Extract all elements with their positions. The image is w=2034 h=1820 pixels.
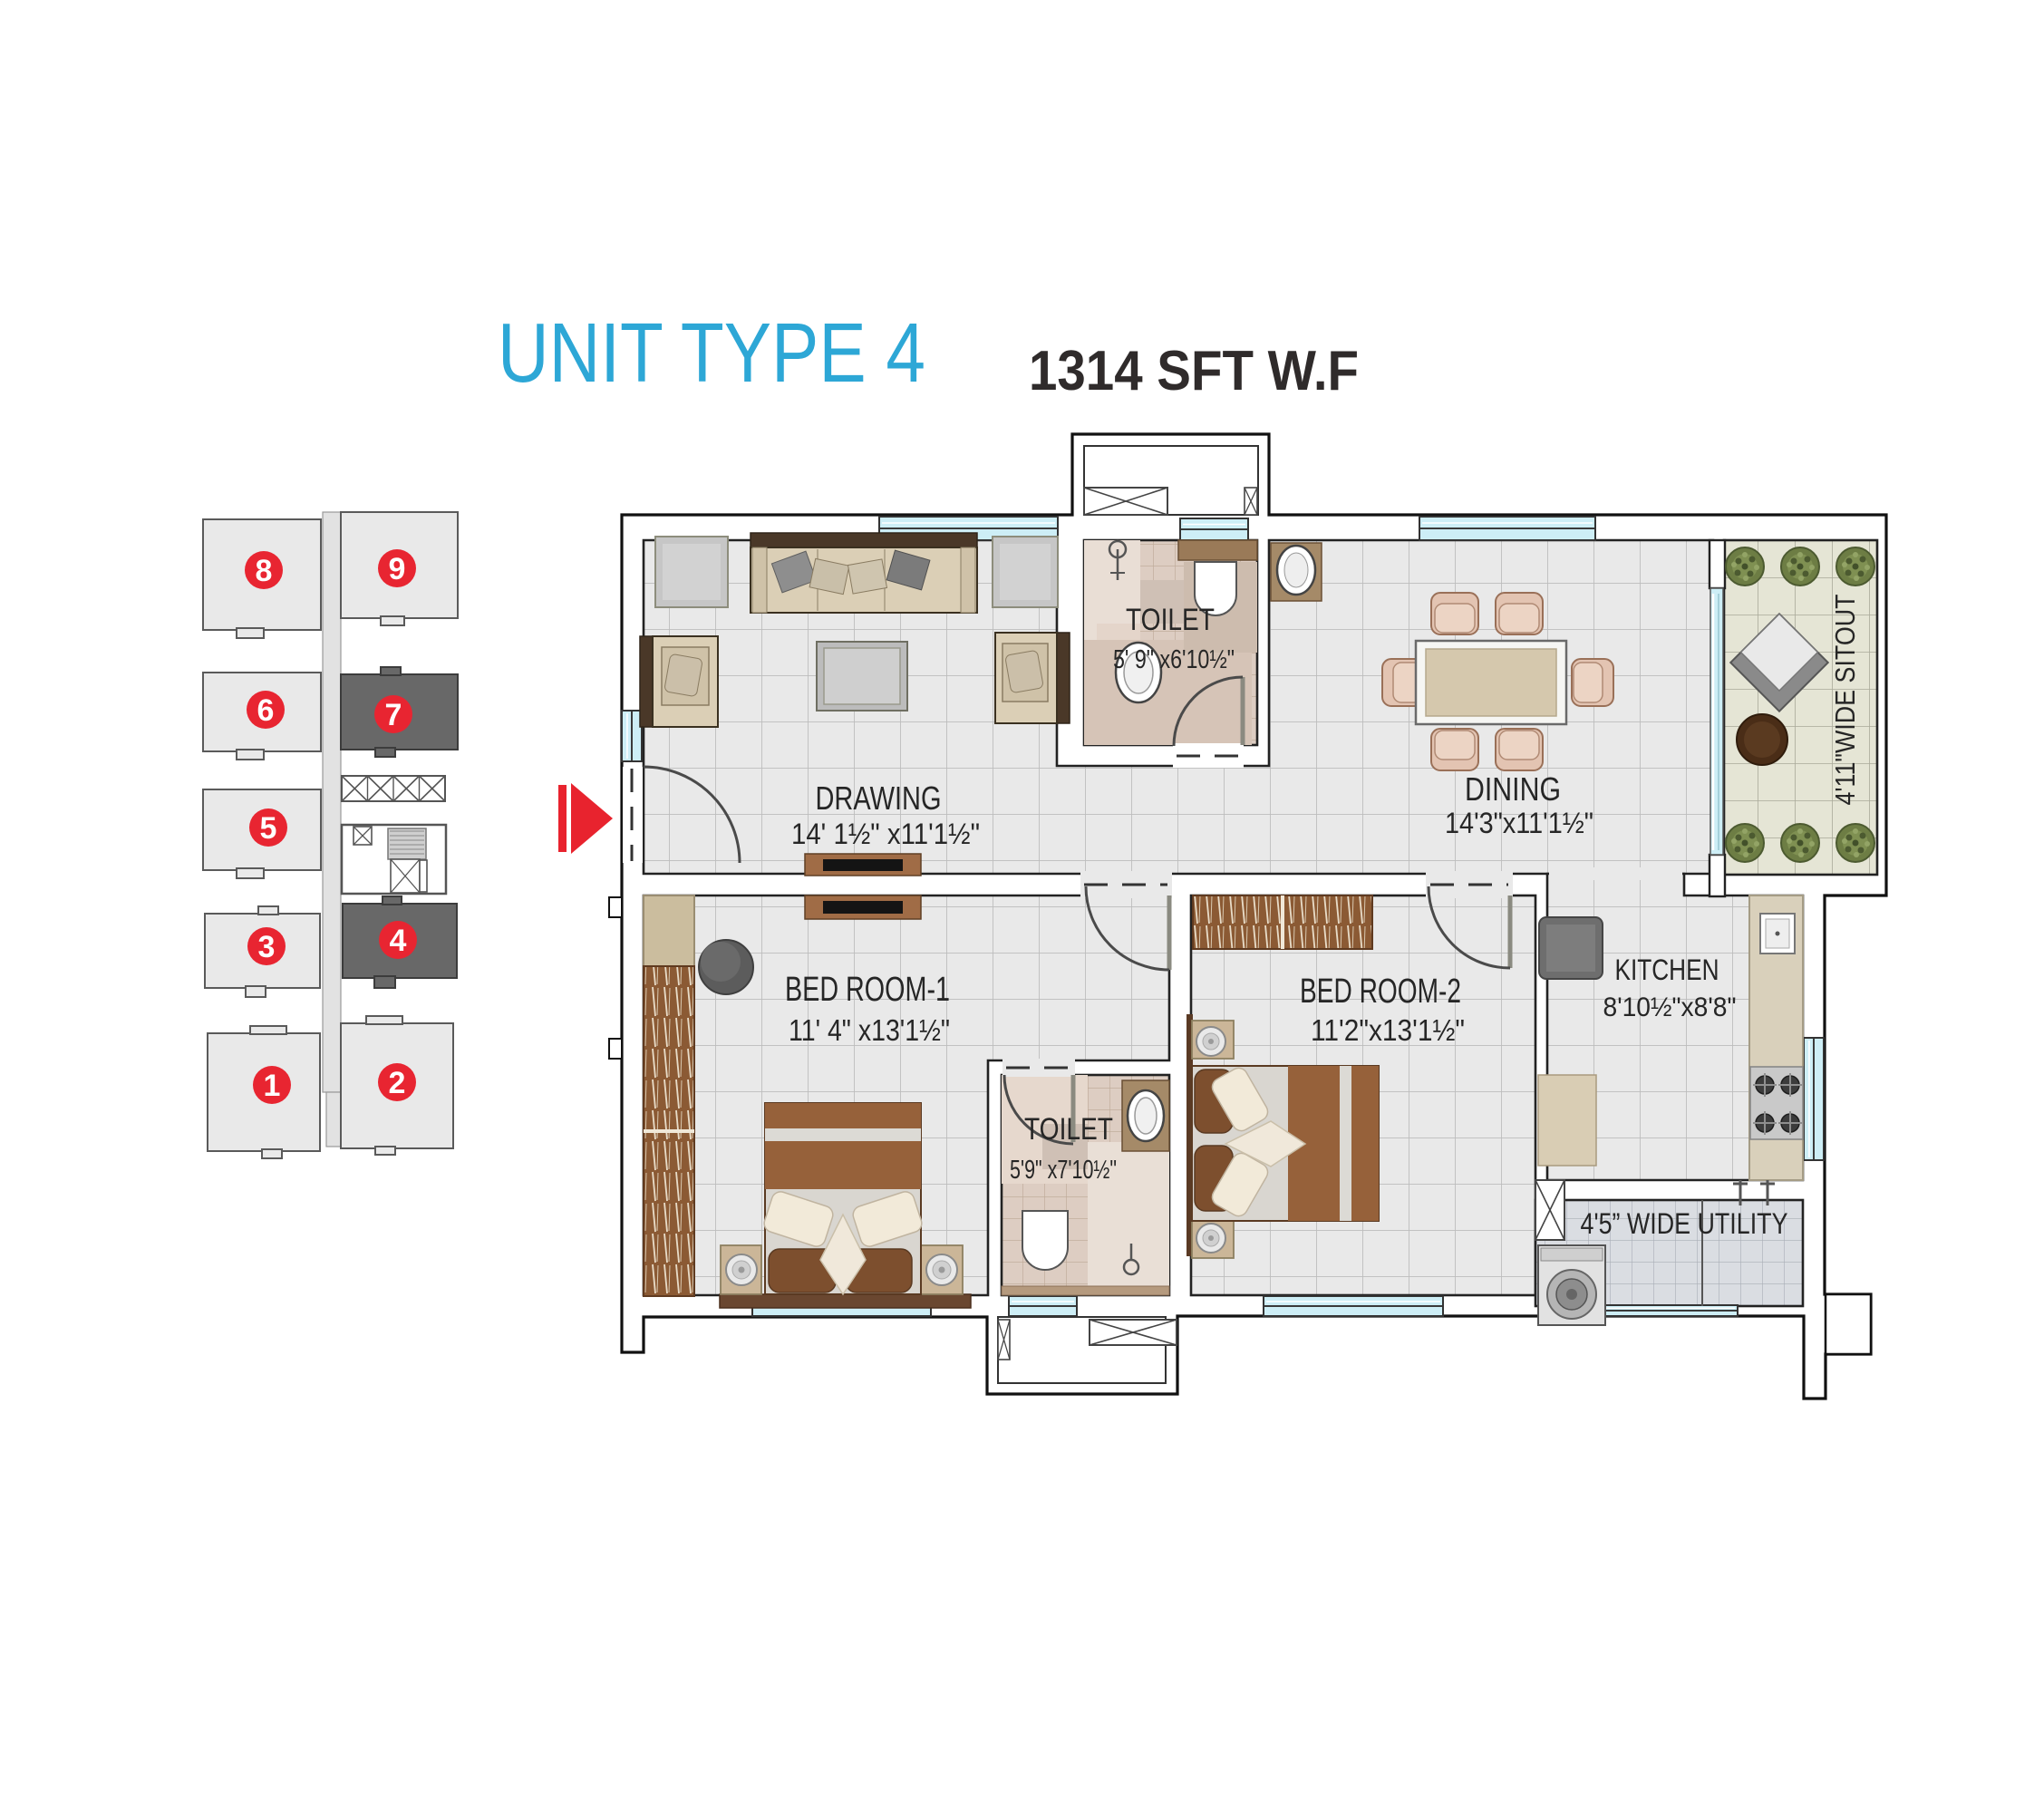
svg-text:14' 1½" x11'1½": 14' 1½" x11'1½" (791, 818, 980, 850)
svg-text:11'2"x13'1½": 11'2"x13'1½" (1311, 1013, 1465, 1047)
svg-text:8: 8 (256, 554, 273, 588)
svg-text:14'3"x11'1½": 14'3"x11'1½" (1445, 807, 1593, 839)
svg-text:BED ROOM-1: BED ROOM-1 (785, 971, 950, 1009)
svg-text:4: 4 (390, 924, 407, 958)
svg-text:DINING: DINING (1465, 770, 1561, 808)
svg-text:4'5” WIDE UTILITY: 4'5” WIDE UTILITY (1581, 1207, 1788, 1240)
svg-text:BED ROOM-2: BED ROOM-2 (1300, 973, 1461, 1011)
svg-text:5'9" x7'10½": 5'9" x7'10½" (1010, 1156, 1117, 1185)
svg-text:3: 3 (258, 930, 276, 964)
svg-text:DRAWING: DRAWING (816, 779, 942, 817)
svg-text:7: 7 (385, 698, 402, 732)
svg-text:KITCHEN: KITCHEN (1615, 954, 1719, 986)
svg-text:1314 SFT W.F: 1314 SFT W.F (1029, 340, 1359, 402)
svg-text:5: 5 (260, 811, 277, 846)
svg-text:UNIT TYPE 4: UNIT TYPE 4 (498, 305, 925, 400)
svg-text:11' 4" x13'1½": 11' 4" x13'1½" (789, 1013, 950, 1047)
svg-text:4'11"WIDE SITOUT: 4'11"WIDE SITOUT (1829, 594, 1861, 805)
svg-text:9: 9 (389, 552, 406, 586)
svg-text:TOILET: TOILET (1024, 1112, 1113, 1147)
svg-text:2: 2 (389, 1066, 406, 1100)
svg-text:6: 6 (257, 693, 275, 728)
svg-text:1: 1 (264, 1069, 281, 1103)
svg-text:5' 9" x6'10½": 5' 9" x6'10½" (1113, 645, 1235, 674)
svg-text:8'10½"x8'8": 8'10½"x8'8" (1603, 992, 1737, 1022)
svg-text:TOILET: TOILET (1126, 603, 1215, 637)
